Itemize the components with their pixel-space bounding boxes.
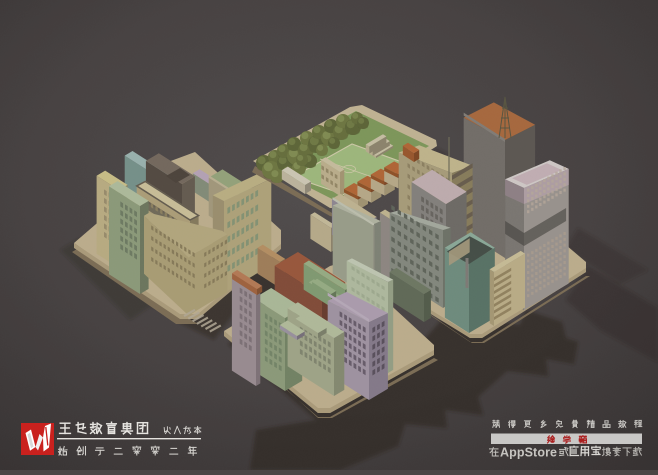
svg-text:AppStore: AppStore <box>500 446 557 460</box>
